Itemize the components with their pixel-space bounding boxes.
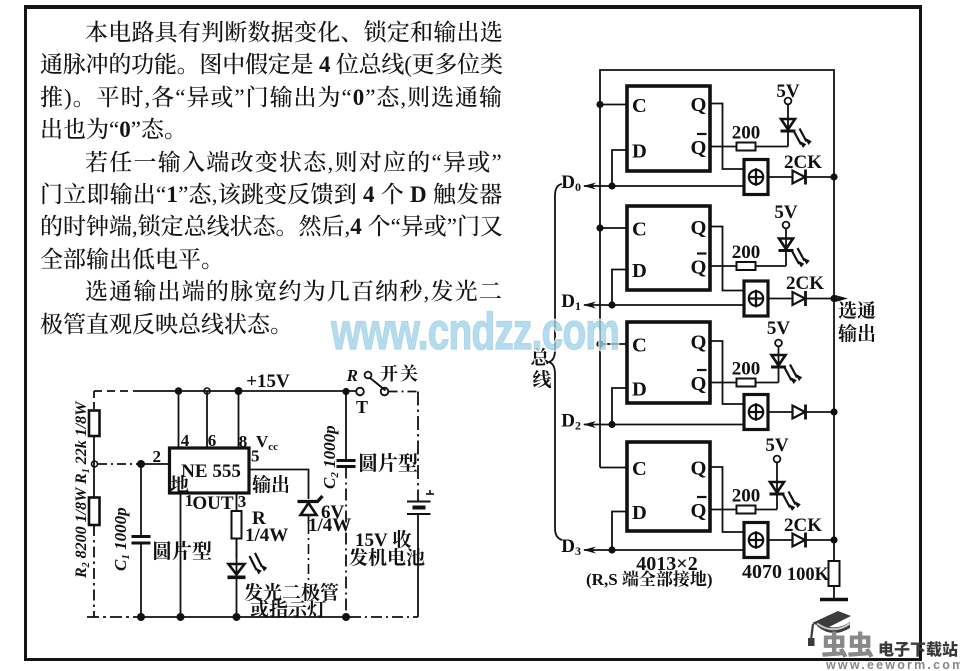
svg-text:C: C [632,219,647,241]
svg-text:C1 1000p: C1 1000p [111,507,132,571]
svg-text:或指示灯: 或指示灯 [250,595,326,622]
svg-text:线: 线 [532,365,551,392]
svg-text:2CK: 2CK [784,515,822,536]
svg-text:R2 8200 1/8W R1 22k 1/8W: R2 8200 1/8W R1 22k 1/8W [73,400,92,579]
svg-text:Q: Q [691,137,707,159]
svg-text:OUT: OUT [192,493,234,514]
svg-text:D: D [632,141,647,163]
svg-text:D: D [632,260,647,282]
svg-text:Q: Q [691,257,707,279]
svg-text:D3: D3 [561,536,581,558]
svg-text:1/4W: 1/4W [245,525,288,546]
svg-text:200: 200 [732,242,761,263]
svg-text:5V: 5V [765,435,789,456]
svg-text:圆片型: 圆片型 [358,447,418,476]
svg-text:NE 555: NE 555 [181,461,241,482]
svg-text:D2: D2 [561,411,581,433]
svg-text:C2 1000p: C2 1000p [320,425,341,489]
svg-text:2: 2 [153,447,162,466]
svg-text:发机电池: 发机电池 [349,543,425,570]
svg-text:8: 8 [239,432,248,451]
svg-text:(R,S 端全部接地): (R,S 端全部接地) [586,565,713,590]
svg-text:D: D [632,502,647,524]
svg-text:200: 200 [732,486,761,507]
svg-text:200: 200 [732,123,761,144]
svg-text:R: R [346,366,358,385]
svg-text:Q: Q [691,332,707,354]
svg-text:T: T [356,397,368,417]
svg-text:2CK: 2CK [786,273,824,294]
svg-text:D0: D0 [561,172,581,194]
svg-text:输出: 输出 [252,470,290,497]
svg-text:2CK: 2CK [784,152,822,173]
svg-text:5V: 5V [767,318,791,339]
svg-text:Q: Q [691,217,707,239]
svg-text:开关: 开关 [380,360,420,386]
svg-text:C: C [632,95,647,117]
svg-text:5V: 5V [774,202,798,223]
svg-text:Q: Q [691,458,707,480]
svg-text:6: 6 [208,431,217,450]
svg-text:1/4W: 1/4W [308,515,351,536]
svg-text:D: D [632,379,647,401]
svg-text:3: 3 [238,492,247,511]
svg-text:5: 5 [251,447,260,466]
svg-text:4: 4 [181,431,190,450]
svg-text:圆片型: 圆片型 [152,535,212,564]
svg-text:Q: Q [691,500,707,522]
svg-text:C: C [632,335,647,357]
svg-text:+15V: +15V [246,371,290,392]
svg-text:5V: 5V [776,81,800,102]
svg-text:100K: 100K [787,565,830,585]
svg-text:Q: Q [691,373,707,395]
svg-text:Q: Q [691,94,707,116]
svg-text:4070: 4070 [742,561,782,583]
svg-text:200: 200 [732,359,761,380]
svg-text:C: C [632,458,647,480]
svg-text:输出: 输出 [838,319,876,346]
